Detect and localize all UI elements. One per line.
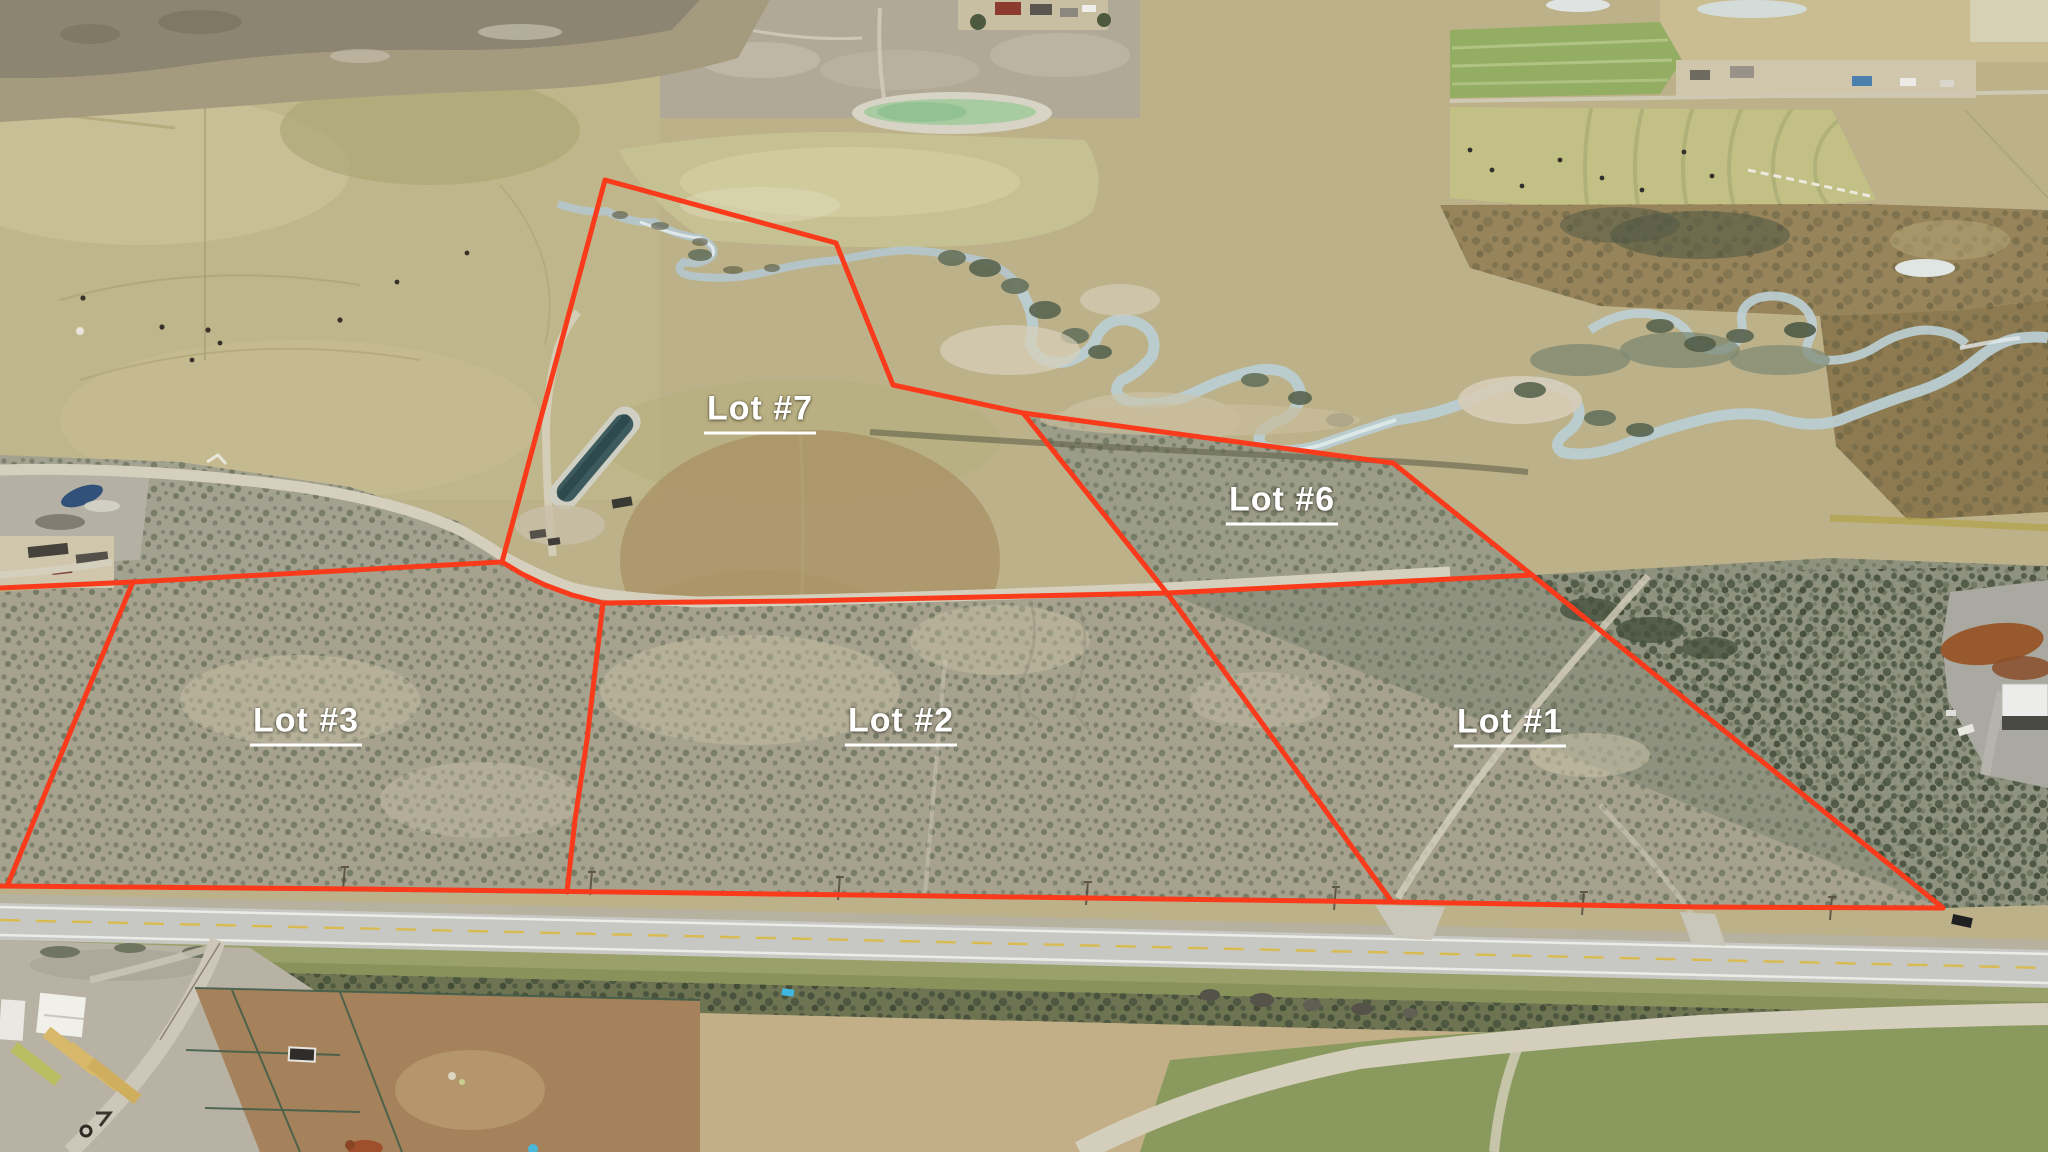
aerial-lot-map: Lot #7Lot #6Lot #3Lot #2Lot #1 <box>0 0 2048 1152</box>
boundary-lot6-west-lot1-lot2-divider <box>1023 413 1392 902</box>
boundary-lot2-lot3-divider <box>567 603 603 892</box>
lot-boundary-overlay <box>0 0 2048 1152</box>
boundary-lot6-north-edge <box>1023 413 1393 463</box>
boundary-highway-line <box>0 886 1943 908</box>
boundary-lot7-north-east-edge <box>605 180 1023 413</box>
boundary-north-road-line <box>0 562 502 588</box>
boundary-east-boundary <box>1393 463 1943 908</box>
boundary-junction-curve <box>502 562 603 603</box>
boundary-lot1-north-line <box>1167 575 1532 593</box>
boundary-lot3-west-edge <box>8 582 133 884</box>
boundary-lot7-west-edge <box>502 180 605 562</box>
boundary-lot2-north-line <box>603 593 1167 603</box>
